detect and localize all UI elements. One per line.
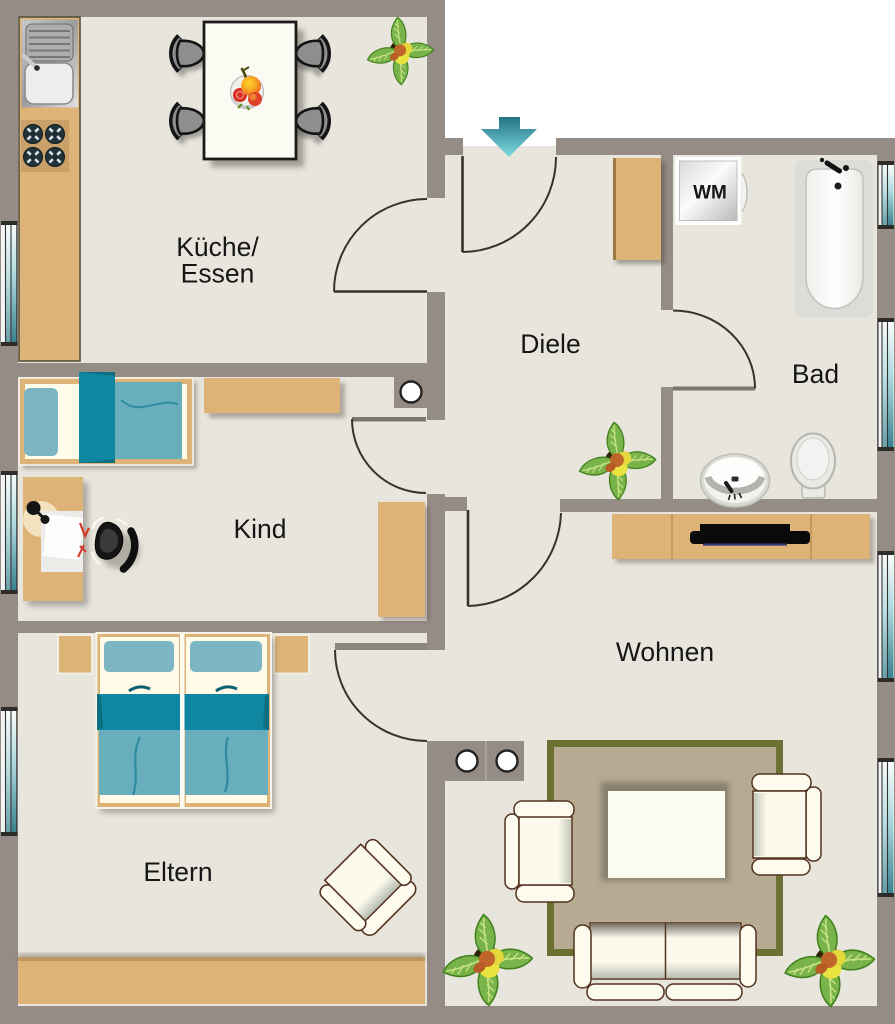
svg-text:Diele: Diele [520,329,580,359]
svg-text:WM: WM [693,183,727,204]
svg-text:Eltern: Eltern [143,857,212,887]
svg-text:Küche/: Küche/ [176,232,259,262]
svg-text:Essen: Essen [181,259,255,289]
svg-text:Kind: Kind [233,514,286,544]
svg-text:Wohnen: Wohnen [616,637,714,667]
svg-text:Bad: Bad [792,359,839,389]
